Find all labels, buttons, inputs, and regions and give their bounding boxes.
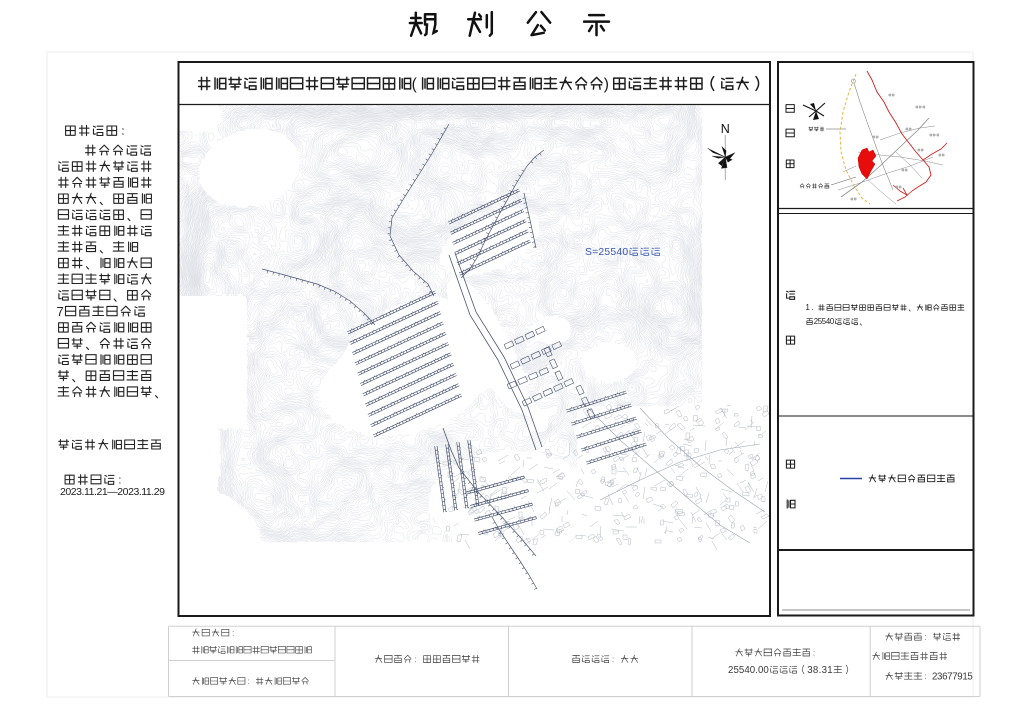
svg-text:38.31: 38.31: [807, 665, 833, 676]
svg-text:N: N: [721, 122, 730, 136]
svg-text:1.: 1.: [806, 303, 814, 312]
svg-text:23677915: 23677915: [932, 671, 973, 682]
svg-text:(: (: [412, 76, 418, 93]
svg-text:2023.11.21—2023.11.29: 2023.11.21—2023.11.29: [60, 486, 165, 498]
svg-text:S=25540: S=25540: [585, 247, 628, 258]
svg-text:25540: 25540: [814, 317, 835, 326]
svg-text:7: 7: [57, 304, 64, 319]
svg-text:25540.00: 25540.00: [728, 665, 769, 676]
svg-text:): ): [604, 76, 609, 93]
